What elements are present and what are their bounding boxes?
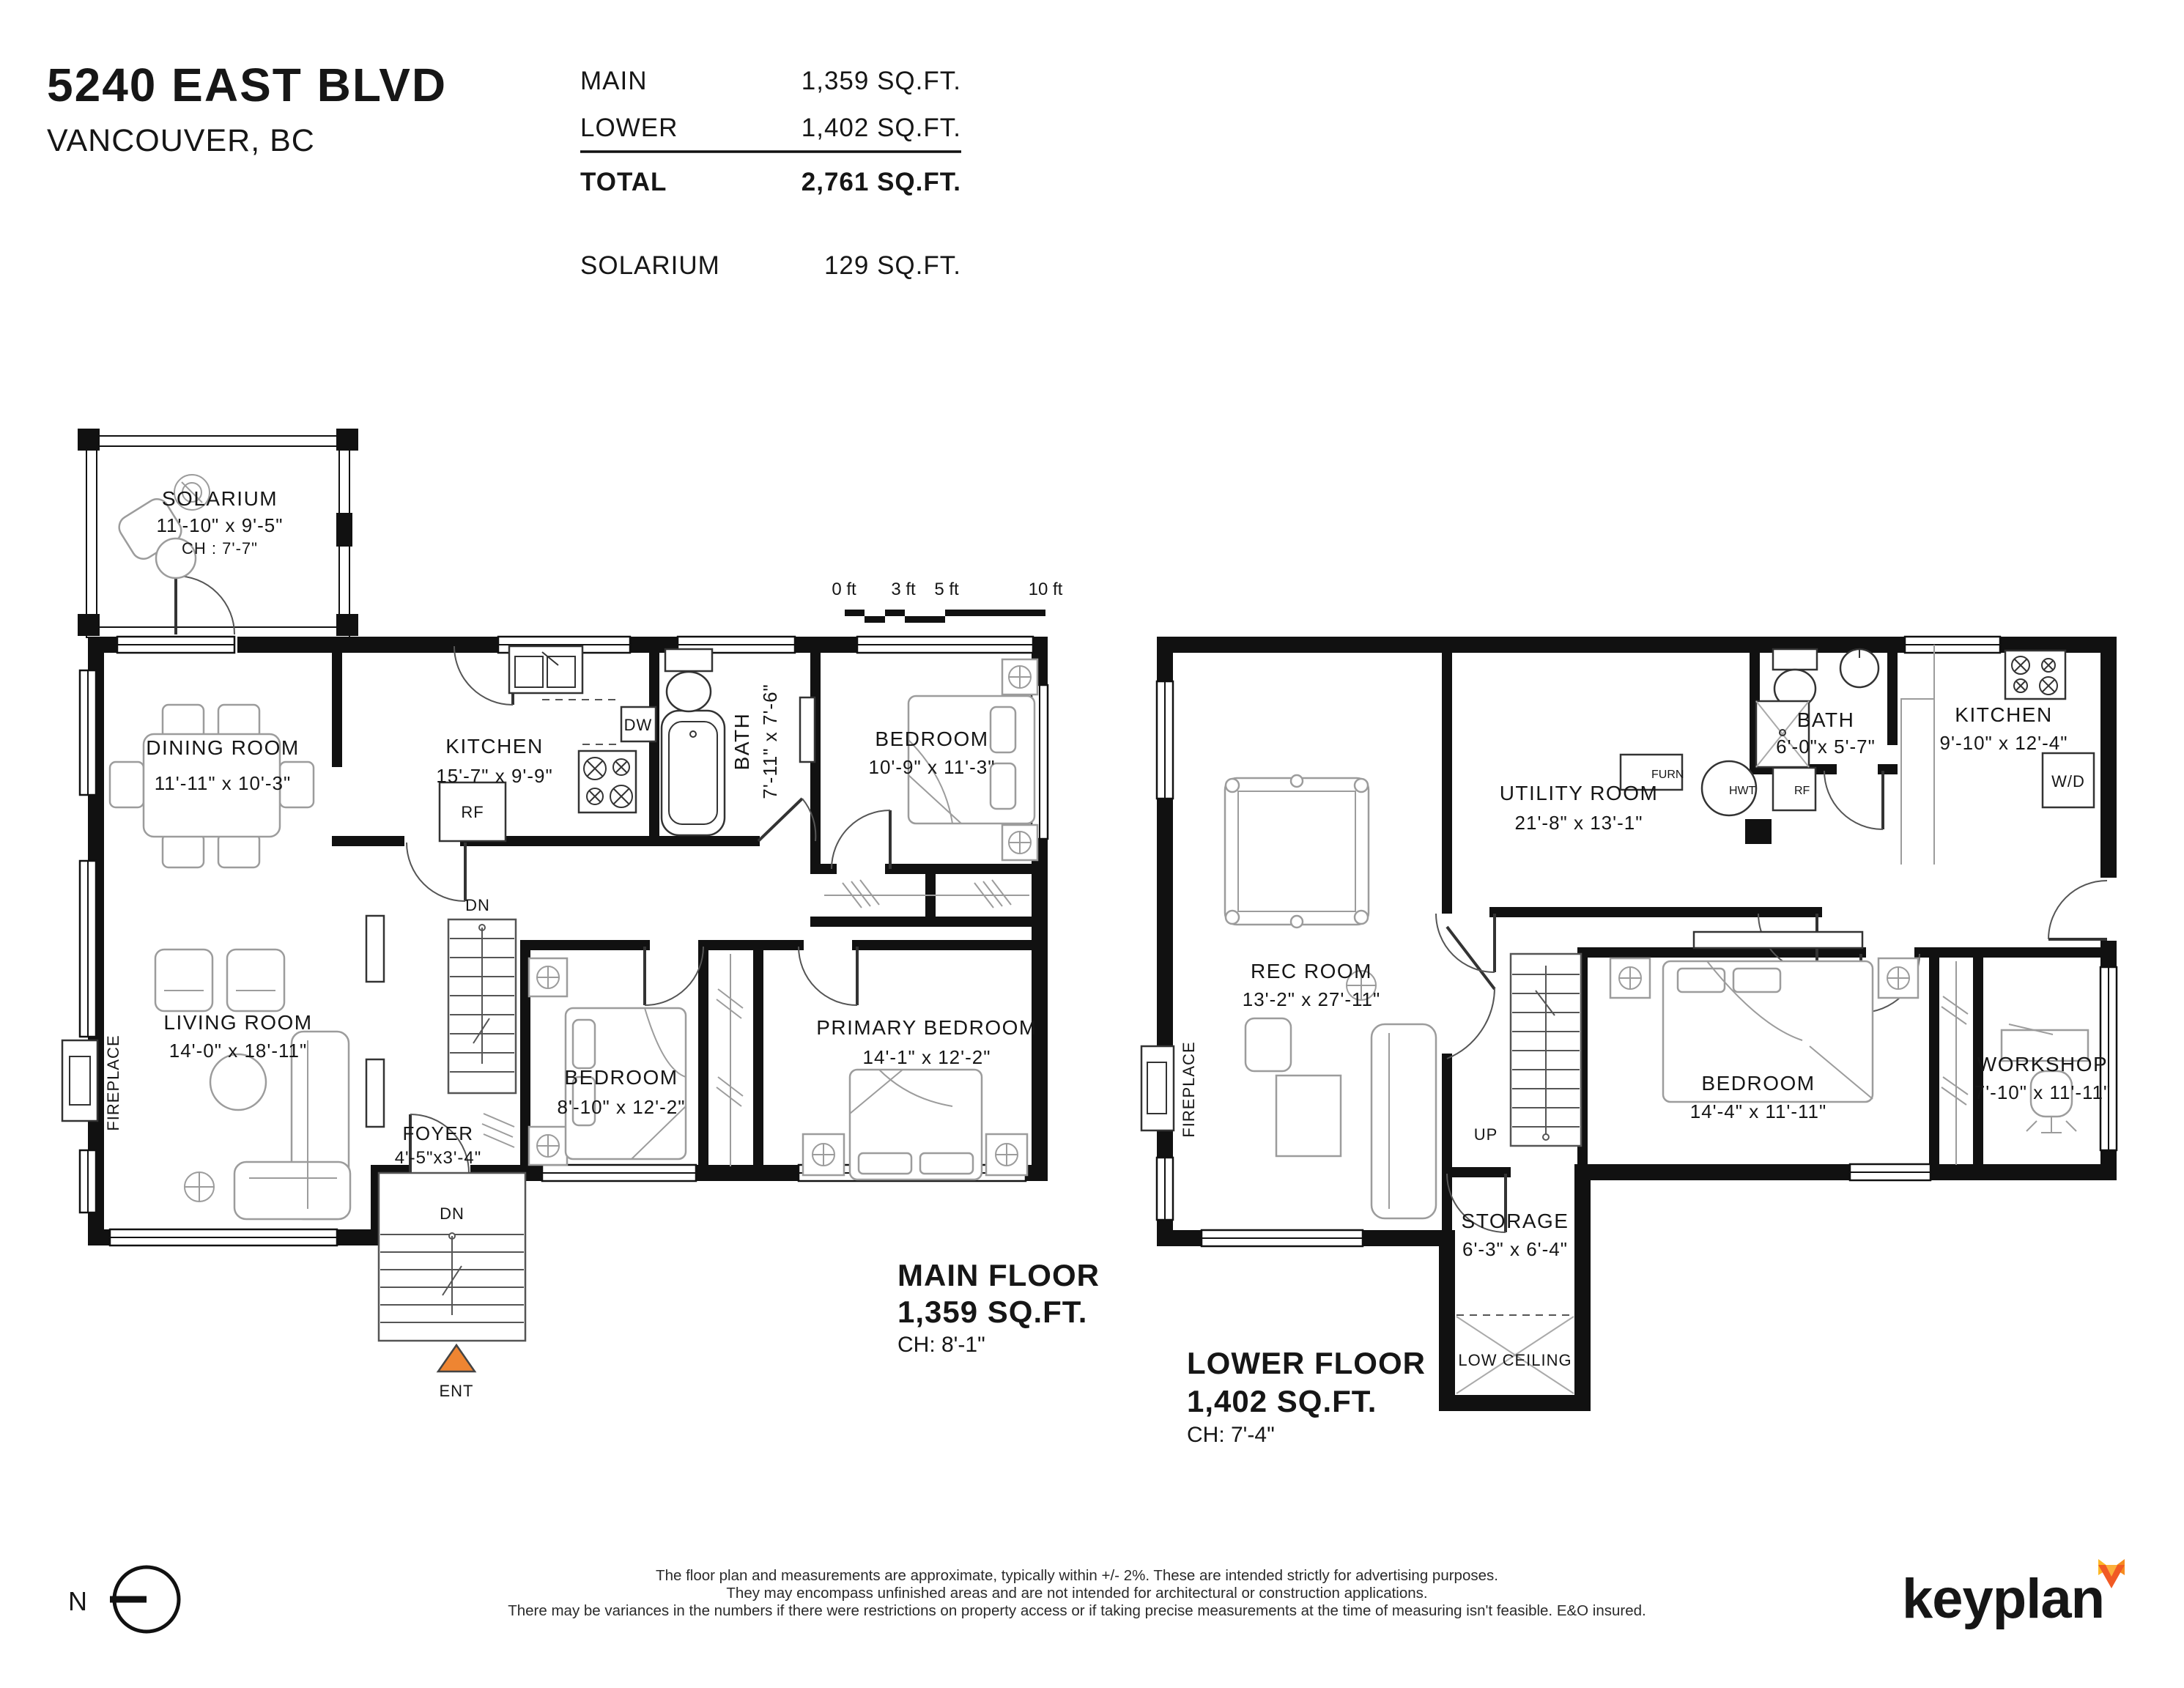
half-wall bbox=[366, 916, 384, 982]
room-dims: 7'-11" x 7'-6" bbox=[759, 684, 781, 799]
primary-furniture bbox=[803, 1070, 1027, 1180]
storage: STORAGE 6'-3" x 6'-4" LOW CEILING bbox=[1456, 1210, 1574, 1393]
fireplace: FIREPLACE bbox=[1141, 1041, 1198, 1137]
room-label: BEDROOM bbox=[875, 728, 988, 750]
disclaimer-line: There may be variances in the numbers if… bbox=[508, 1602, 1646, 1619]
room-label: BATH bbox=[1797, 708, 1855, 731]
room-dims: 6'-0"x 5'-7" bbox=[1776, 736, 1876, 758]
room-label: UTILITY ROOM bbox=[1500, 782, 1659, 804]
room-dims: 4'-5"x3'-4" bbox=[395, 1148, 482, 1168]
stairs-dn-label: DN bbox=[465, 896, 490, 914]
floor-plan-sheet: 5240 EAST BLVD VANCOUVER, BC MAIN 1,359 … bbox=[0, 0, 2184, 1688]
room-label: DINING ROOM bbox=[146, 736, 299, 759]
furnace-label: FURN bbox=[1651, 769, 1684, 781]
logo-wordmark: keyplan bbox=[1902, 1568, 2104, 1630]
floor-title: MAIN FLOOR bbox=[897, 1258, 1100, 1292]
area-table: MAIN 1,359 SQ.FT. LOWER 1,402 SQ.FT. TOT… bbox=[580, 67, 961, 280]
room-dims: 14'-4" x 11'-11" bbox=[1690, 1100, 1827, 1122]
fireplace-label: FIREPLACE bbox=[1180, 1041, 1198, 1137]
room-label: BATH bbox=[730, 713, 753, 771]
floor-title: LOWER FLOOR bbox=[1187, 1346, 1426, 1380]
disclaimer-line: The floor plan and measurements are appr… bbox=[656, 1567, 1498, 1584]
stairs-down-interior: DN bbox=[448, 896, 516, 1093]
room-label: KITCHEN bbox=[1955, 703, 2052, 726]
room-label: STORAGE bbox=[1462, 1210, 1569, 1232]
room-dims: 14'-0" x 18'-11" bbox=[169, 1040, 307, 1062]
room-dims: 14'-1" x 12'-2" bbox=[863, 1046, 991, 1068]
room-dims: 10'-9" x 11'-3" bbox=[869, 756, 996, 778]
room-label: BEDROOM bbox=[1701, 1072, 1815, 1095]
room-dims: 11'-10" x 9'-5" bbox=[157, 514, 284, 536]
scale-tick-0: 0 ft bbox=[832, 580, 856, 599]
area-total-value: 2,761 SQ.FT. bbox=[802, 168, 961, 196]
kitchen-fixtures: W/D bbox=[1901, 645, 2094, 865]
entry-stairs: DN ENT bbox=[379, 1173, 525, 1400]
main-floor-plan: FIREPLACE DW RF bbox=[62, 429, 1100, 1400]
fridge-label: RF bbox=[461, 803, 484, 821]
fireplace: FIREPLACE bbox=[62, 1034, 122, 1130]
low-ceiling-label: LOW CEILING bbox=[1458, 1351, 1572, 1369]
door-opening bbox=[2099, 878, 2118, 941]
fireplace-label: FIREPLACE bbox=[104, 1034, 122, 1130]
room-label: REC ROOM bbox=[1251, 960, 1372, 982]
column bbox=[1745, 819, 1772, 844]
lower-floor-plan: FIREPLACE FURN HWT RF bbox=[1141, 637, 2118, 1447]
room-label: WORKSHOP bbox=[1977, 1053, 2108, 1076]
entry-arrow-icon bbox=[438, 1345, 475, 1371]
area-row-label: MAIN bbox=[580, 67, 648, 95]
room-label: SOLARIUM bbox=[162, 487, 278, 510]
scale-bar: 0 ft 3 ft 5 ft 10 ft bbox=[832, 580, 1062, 623]
disclaimer-line: They may encompass unfinished areas and … bbox=[726, 1585, 1427, 1602]
entry-label: ENT bbox=[440, 1382, 474, 1400]
page-subtitle: VANCOUVER, BC bbox=[47, 123, 315, 158]
room-dims: 8'-10" x 12'-2" bbox=[558, 1096, 686, 1118]
scale-segment bbox=[885, 610, 905, 616]
room-dims: 21'-8" x 13'-1" bbox=[1515, 812, 1643, 834]
stairs-up-label: UP bbox=[1474, 1125, 1498, 1144]
north-label: N bbox=[68, 1586, 87, 1616]
scale-tick-5: 5 ft bbox=[934, 580, 959, 599]
scale-segment bbox=[845, 610, 865, 616]
scale-segment bbox=[905, 616, 945, 623]
room-dims: 9'-10" x 12'-4" bbox=[1940, 732, 2068, 754]
floor-area: 1,402 SQ.FT. bbox=[1187, 1384, 1377, 1418]
entry-dn-label: DN bbox=[440, 1204, 464, 1223]
bedroom2-furniture bbox=[529, 958, 686, 1165]
scale-segment bbox=[945, 610, 1045, 616]
footer: N The floor plan and measurements are ap… bbox=[68, 1559, 2125, 1632]
room-label: LIVING ROOM bbox=[163, 1011, 312, 1034]
area-solarium-label: SOLARIUM bbox=[580, 251, 720, 280]
area-row-label: LOWER bbox=[580, 114, 678, 142]
area-total-label: TOTAL bbox=[580, 168, 667, 196]
header: 5240 EAST BLVD VANCOUVER, BC MAIN 1,359 … bbox=[47, 59, 961, 280]
half-wall bbox=[366, 1059, 384, 1127]
scale-tick-10: 10 ft bbox=[1029, 580, 1063, 599]
workshop-furniture bbox=[2002, 1024, 2088, 1133]
room-dims: 11'-11" x 10'-3" bbox=[155, 772, 292, 794]
floor-ceiling-height: CH: 8'-1" bbox=[897, 1333, 985, 1357]
page-title: 5240 EAST BLVD bbox=[47, 59, 447, 111]
fridge-label: RF bbox=[1794, 785, 1810, 797]
hot-water-tank-label: HWT bbox=[1729, 785, 1756, 797]
room-dims: 15'-7" x 9'-9" bbox=[436, 765, 552, 787]
room-label: KITCHEN bbox=[445, 735, 543, 758]
room-dims: 13'-2" x 27'-11" bbox=[1243, 988, 1380, 1010]
floor-area: 1,359 SQ.FT. bbox=[897, 1295, 1087, 1329]
scale-segment bbox=[865, 616, 885, 623]
keyplan-logo: keyplan bbox=[1902, 1559, 2125, 1630]
floor-ceiling-height: CH: 7'-4" bbox=[1187, 1423, 1275, 1447]
room-label: BEDROOM bbox=[564, 1066, 678, 1089]
closet bbox=[1941, 961, 1968, 1165]
dishwasher-label: DW bbox=[624, 716, 653, 734]
area-row-value: 1,359 SQ.FT. bbox=[802, 67, 961, 95]
room-dims: 6'-3" x 6'-4" bbox=[1462, 1238, 1568, 1260]
washer-dryer-label: W/D bbox=[2051, 772, 2085, 791]
area-solarium-value: 129 SQ.FT. bbox=[824, 251, 961, 280]
room-ch: CH : 7'-7" bbox=[182, 539, 258, 558]
north-arrow-icon: N bbox=[68, 1567, 179, 1632]
living-furniture bbox=[155, 949, 350, 1219]
room-dims: 7'-10" x 11'-11" bbox=[1974, 1081, 2111, 1103]
scale-tick-3: 3 ft bbox=[891, 580, 916, 599]
area-row-value: 1,402 SQ.FT. bbox=[802, 114, 961, 142]
room-label: PRIMARY BEDROOM bbox=[816, 1016, 1037, 1039]
room-label: FOYER bbox=[402, 1122, 473, 1144]
